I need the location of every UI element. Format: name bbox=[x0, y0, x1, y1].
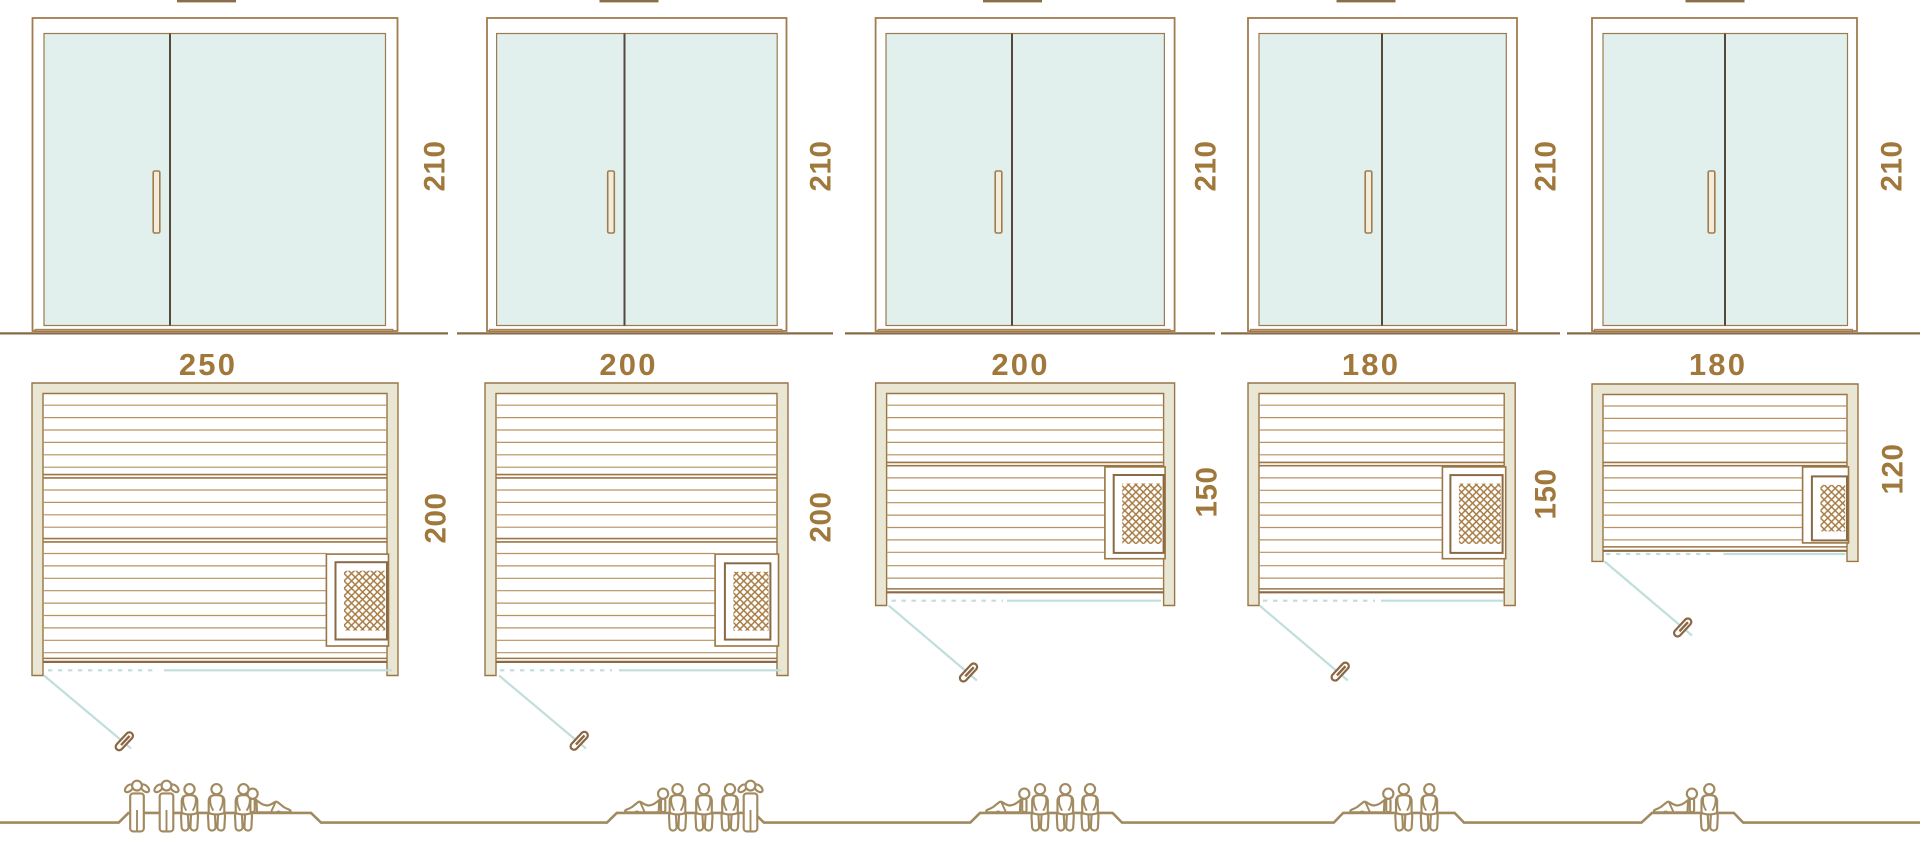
svg-text:210: 210 bbox=[1190, 140, 1223, 191]
svg-text:150: 150 bbox=[1191, 466, 1224, 517]
svg-text:210: 210 bbox=[805, 140, 838, 191]
svg-text:180: 180 bbox=[1689, 347, 1747, 382]
svg-text:250: 250 bbox=[179, 347, 237, 382]
svg-text:180: 180 bbox=[1342, 347, 1400, 382]
svg-text:210: 210 bbox=[1530, 140, 1563, 191]
svg-text:210: 210 bbox=[1876, 140, 1909, 191]
svg-text:200: 200 bbox=[991, 347, 1049, 382]
svg-text:120: 120 bbox=[1877, 443, 1910, 494]
svg-text:150: 150 bbox=[1530, 468, 1563, 519]
svg-text:200: 200 bbox=[420, 492, 453, 543]
svg-text:210: 210 bbox=[419, 140, 452, 191]
svg-text:200: 200 bbox=[805, 491, 838, 542]
svg-text:200: 200 bbox=[599, 347, 657, 382]
